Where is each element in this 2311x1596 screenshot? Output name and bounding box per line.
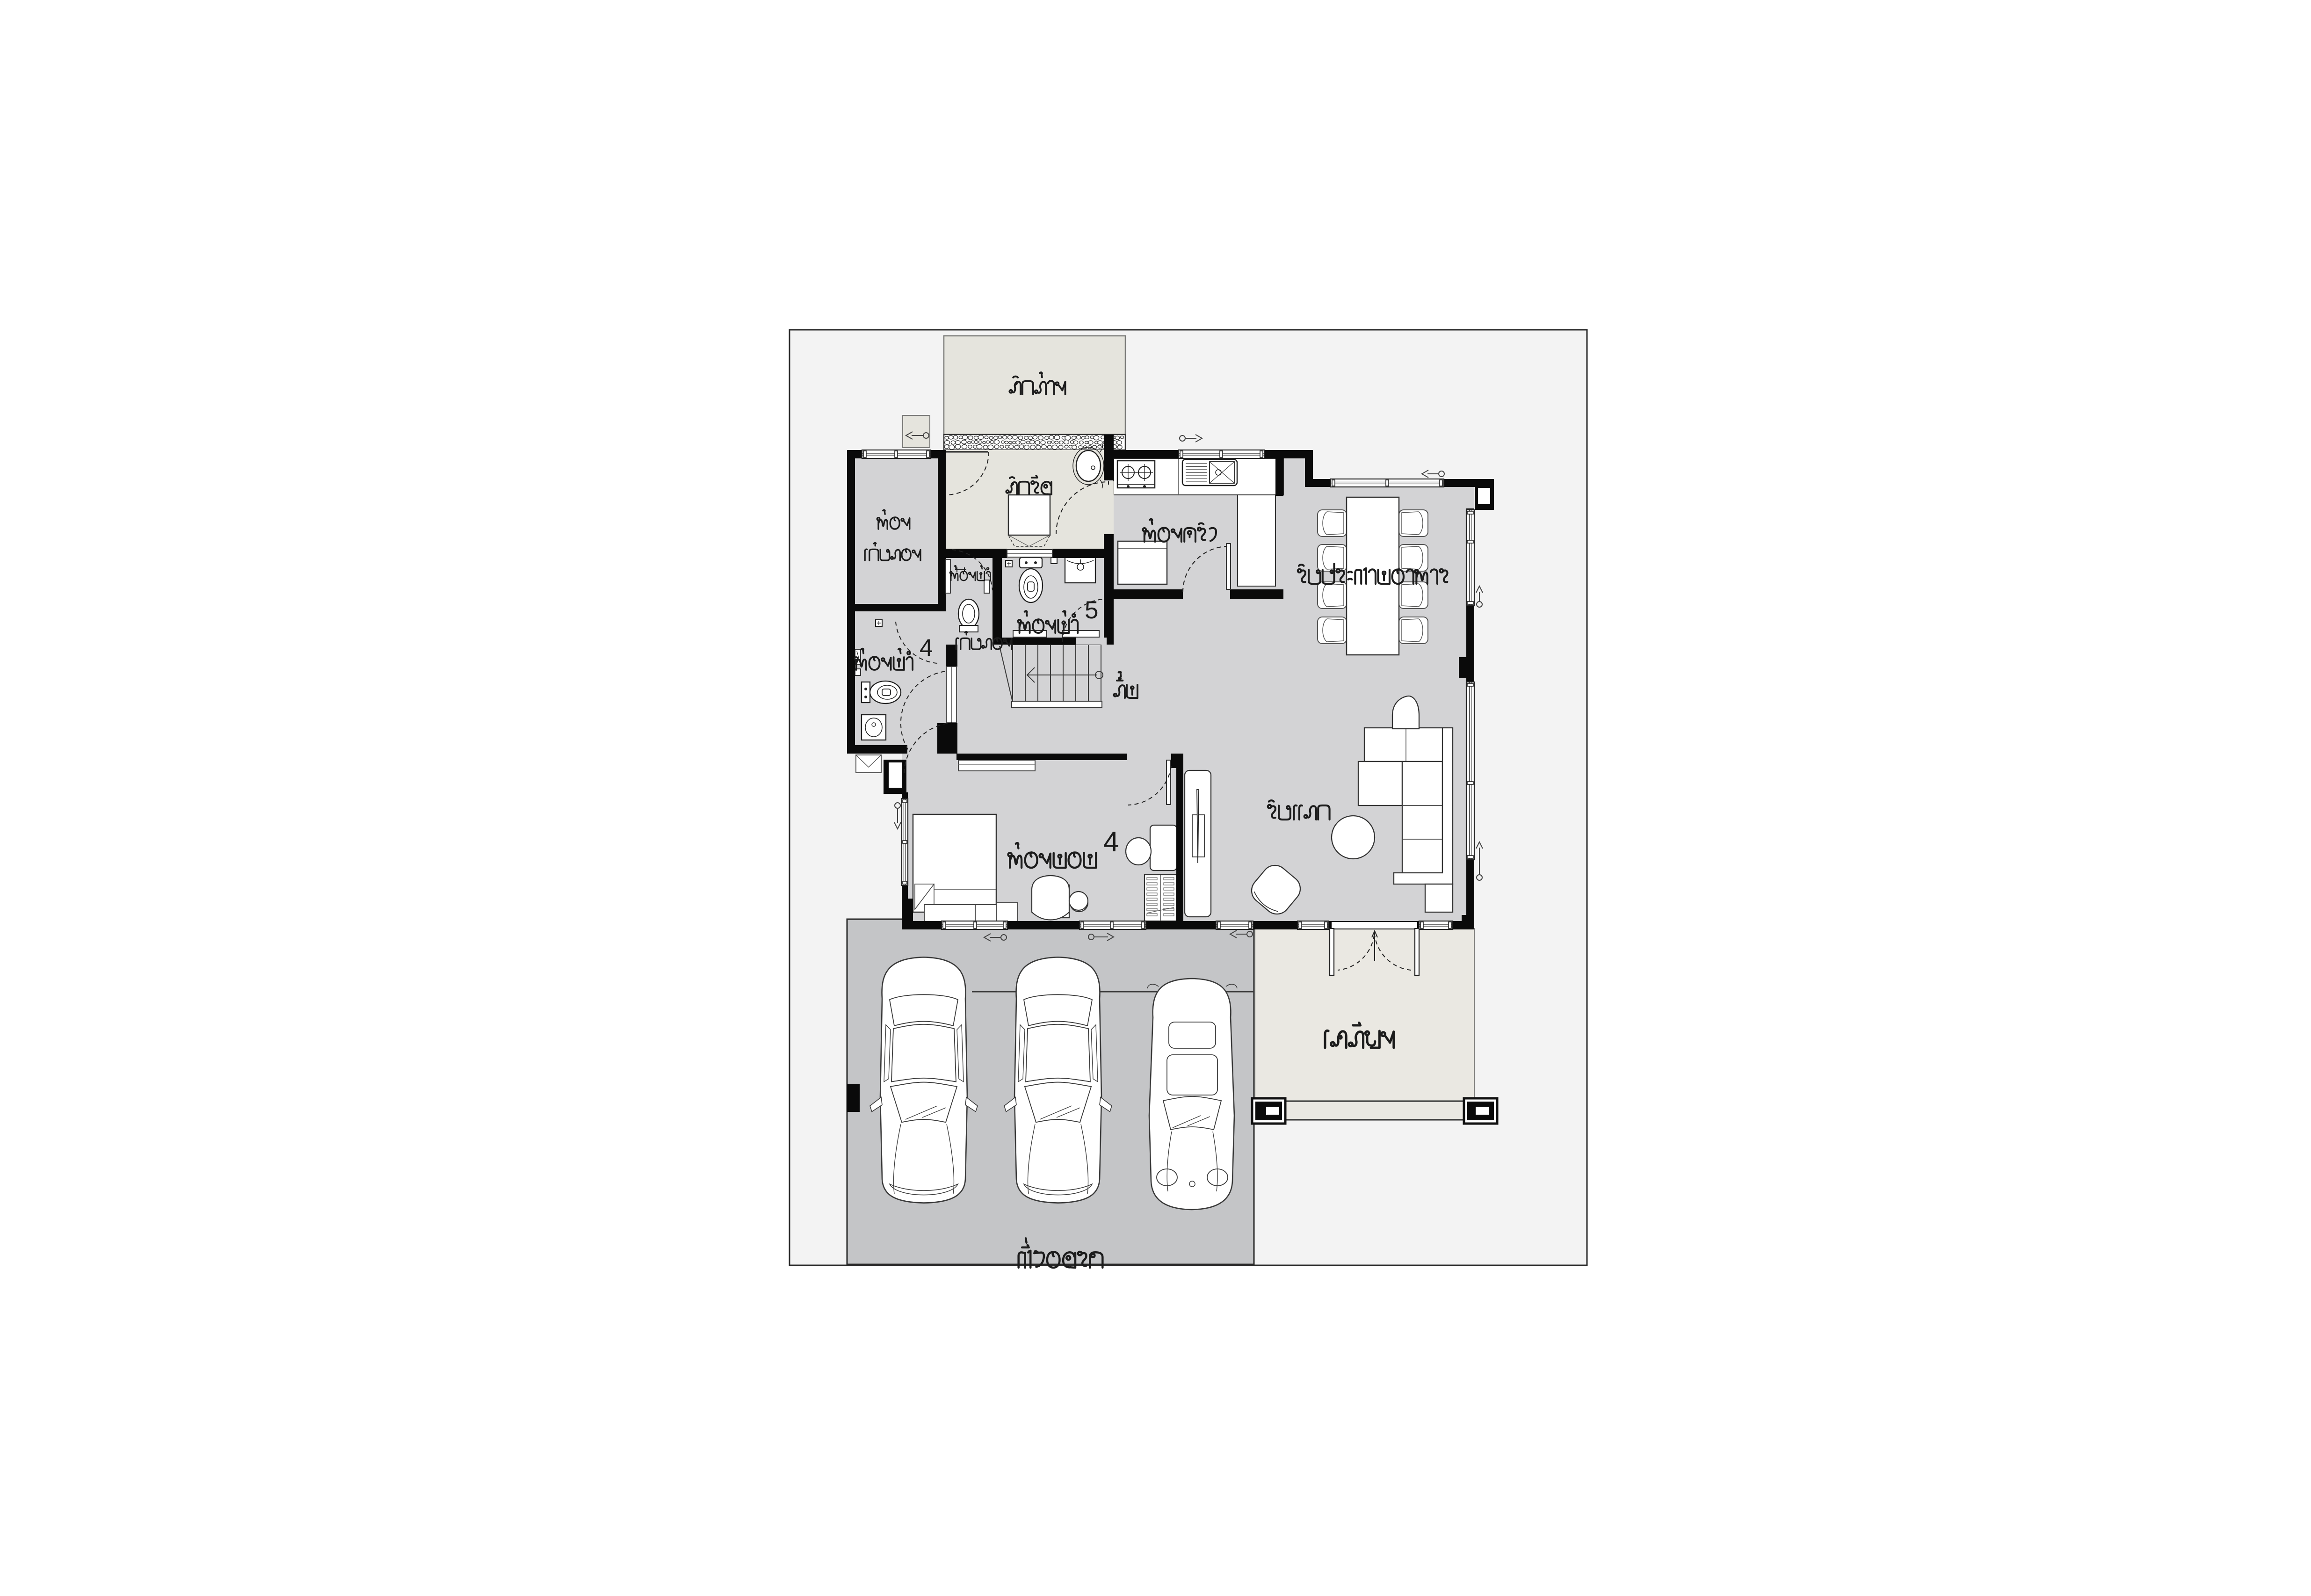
svg-text:4: 4 [1103,826,1119,857]
svg-text:4: 4 [920,634,933,661]
svg-text:5: 5 [1085,596,1098,624]
